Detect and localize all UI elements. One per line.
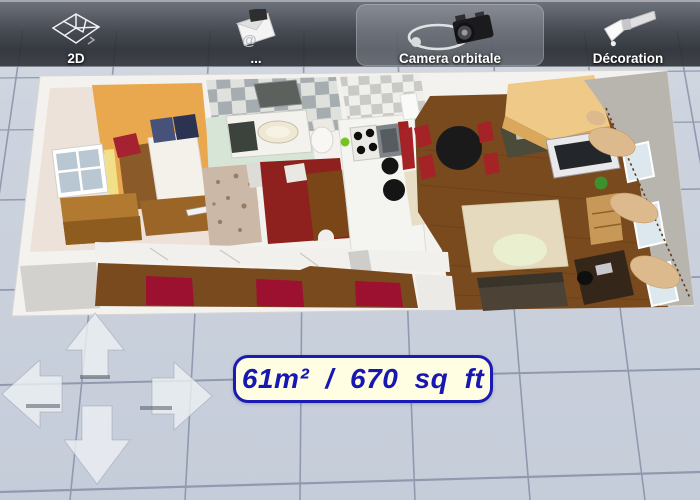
stove[interactable] [350, 125, 380, 161]
desk[interactable] [574, 250, 634, 305]
toolbar-label: 2D [67, 51, 84, 66]
floorplan-2d-icon [50, 11, 102, 51]
room-entry[interactable] [202, 162, 266, 248]
toolbar-button-orbital-camera[interactable]: Camera orbitale [356, 4, 544, 66]
toolbar-label: ... [250, 51, 261, 66]
toolbar-label: Décoration [593, 51, 664, 66]
share-export-icon: @ [230, 9, 282, 51]
toolbar-label: Camera orbitale [399, 51, 501, 66]
app-screen: 2D @ ... [0, 0, 700, 500]
closet-box [284, 163, 307, 183]
floor-plan-3d-view[interactable] [0, 0, 700, 500]
svg-text:@: @ [242, 32, 257, 49]
toilet[interactable] [311, 118, 335, 153]
toolbar-button-2d[interactable]: 2D [30, 4, 122, 66]
area-label: 61m² / 670 sq ft [233, 355, 493, 403]
sofa-dark[interactable] [477, 272, 568, 311]
bar-stool[interactable] [382, 158, 399, 175]
hallway-gray-floor [20, 262, 100, 312]
fridge[interactable] [400, 93, 420, 120]
plant[interactable] [595, 177, 608, 190]
area-label-text: 61m² / 670 sq ft [242, 363, 484, 395]
apartment-plan[interactable] [12, 70, 694, 316]
toolbar-button-share[interactable]: @ ... [206, 4, 306, 66]
bathroom-vanity[interactable] [226, 110, 312, 158]
toolbar: 2D @ ... [0, 0, 700, 67]
room-closet[interactable] [260, 158, 350, 244]
orbital-camera-icon [402, 11, 498, 51]
green-apple [341, 138, 350, 147]
dining-table[interactable] [436, 126, 482, 170]
living-rug[interactable] [462, 200, 568, 272]
bathroom-mirror[interactable] [254, 80, 302, 108]
wardrobe[interactable] [60, 193, 142, 245]
bar-stool[interactable] [383, 179, 405, 201]
toolbar-button-decoration[interactable]: Décoration [566, 4, 690, 66]
paintbrush-icon [597, 11, 659, 51]
hallway-end-floor [415, 274, 456, 310]
bedroom-window[interactable] [52, 144, 119, 198]
